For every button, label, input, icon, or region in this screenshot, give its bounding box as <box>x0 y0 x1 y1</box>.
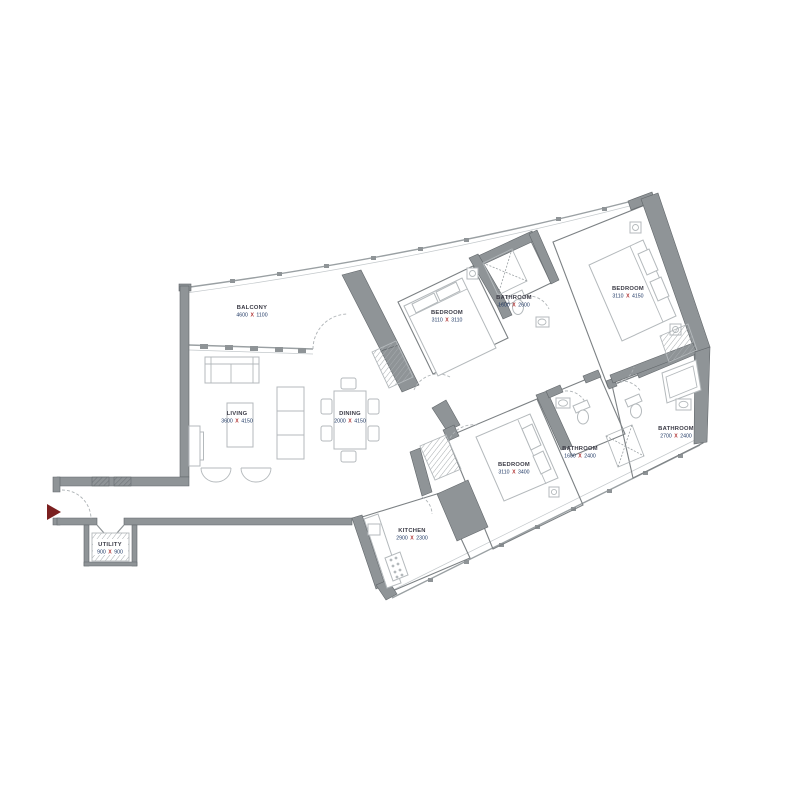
room-name: LIVING <box>227 411 248 417</box>
room-label-balcony: BALCONY 4600X1100 <box>236 305 267 319</box>
room-name: DINING <box>339 411 361 417</box>
room-label-bedroom-2: BEDROOM 3110X4150 <box>612 286 644 300</box>
room-dimension: 2900X2300 <box>396 536 428 542</box>
shelf-unit <box>277 387 304 459</box>
wall-utility-right <box>132 525 137 566</box>
dining-chair <box>341 451 356 462</box>
top-facade-window <box>183 197 648 293</box>
wall-bathroom-1-top <box>478 231 536 265</box>
wall-bedroom-1-entry-right <box>432 400 460 431</box>
room-label-bathroom-2: BATHROOM 1600X2400 <box>562 446 598 460</box>
room-label-bathroom-1: BATHROOM 1600X2600 <box>496 295 532 309</box>
toilet <box>578 410 589 424</box>
room-dimension: 3110X3110 <box>432 318 463 324</box>
wall-utility-left <box>84 525 89 566</box>
bedroom-3-furniture <box>420 414 559 501</box>
room-name: BATHROOM <box>658 426 694 432</box>
coffee-table <box>227 403 253 447</box>
room-dimension: 2700X2400 <box>660 434 692 440</box>
room-label-utility: UTILITY 900X900 <box>97 542 123 556</box>
wall-corridor-bottom-left <box>57 518 97 525</box>
dining-chair <box>321 426 332 441</box>
utility-door-opening <box>97 525 124 533</box>
wall-utility-bottom <box>84 562 137 566</box>
room-dimension: 2000X4150 <box>334 419 366 425</box>
toilet <box>631 404 642 418</box>
wall-kitchen-column <box>437 480 488 541</box>
tv-console <box>189 426 200 466</box>
bedside-table <box>630 222 641 233</box>
armchair <box>241 468 271 482</box>
door-frame-hatch <box>92 477 109 486</box>
room-name: BATHROOM <box>496 295 532 301</box>
wall-balcony-divider <box>342 270 399 351</box>
room-name: KITCHEN <box>398 528 426 534</box>
wall-entry-stub-top <box>53 477 60 492</box>
dining-chair <box>368 399 379 414</box>
kitchen-sink <box>368 524 380 535</box>
wall-bathroom-1-right <box>529 230 559 284</box>
entry-door-arc <box>62 490 91 519</box>
room-dimension: 4600X1100 <box>236 313 267 319</box>
kitchen-door-arc <box>422 497 432 514</box>
entry-arrow <box>47 504 61 520</box>
room-name: BEDROOM <box>431 310 463 316</box>
door-frame-hatch <box>114 477 131 486</box>
dining-chair <box>368 426 379 441</box>
room-dimension: 3110X4150 <box>612 294 643 300</box>
room-dimension: 3600X4150 <box>221 419 253 425</box>
wall-corridor-bottom <box>124 518 352 525</box>
bedside-table <box>467 268 478 279</box>
room-label-bedroom-1: BEDROOM 3110X3110 <box>431 310 463 324</box>
room-name: BEDROOM <box>498 462 530 468</box>
room-label-bathroom-3: BATHROOM 2700X2400 <box>658 426 694 440</box>
wall-bathroom-2-stub-left <box>546 385 563 398</box>
bedroom-1-door-arc <box>414 374 450 390</box>
sink-counter <box>676 399 691 410</box>
room-dimension: 900X900 <box>97 550 123 556</box>
bedside-table <box>549 487 559 497</box>
room-name: UTILITY <box>98 542 122 548</box>
room-name: BATHROOM <box>562 446 598 452</box>
tv <box>200 432 204 460</box>
floor-plan-svg: BALCONY 4600X1100 LIVING 3600X4150 DININ… <box>0 0 800 800</box>
room-dimension: 3110X3400 <box>498 470 529 476</box>
room-dimension: 1600X2400 <box>564 454 596 460</box>
balcony-rail <box>189 344 313 354</box>
room-label-kitchen: KITCHEN 2900X2300 <box>396 528 428 542</box>
room-dimension: 1600X2600 <box>498 303 530 309</box>
sofa <box>205 357 259 383</box>
room-name: BEDROOM <box>612 286 644 292</box>
wall-left <box>180 286 189 477</box>
dining-chair <box>321 399 332 414</box>
floor-plan-page: BALCONY 4600X1100 LIVING 3600X4150 DININ… <box>0 0 800 800</box>
room-name: BALCONY <box>237 305 267 311</box>
bathroom-3-door-arc <box>620 381 641 392</box>
armchair <box>201 468 231 482</box>
wall-bathroom-2-stub-right <box>583 370 601 383</box>
room-label-bedroom-3: BEDROOM 3110X3400 <box>498 462 530 476</box>
balcony-door-arc <box>313 314 348 349</box>
dining-chair <box>341 378 356 389</box>
